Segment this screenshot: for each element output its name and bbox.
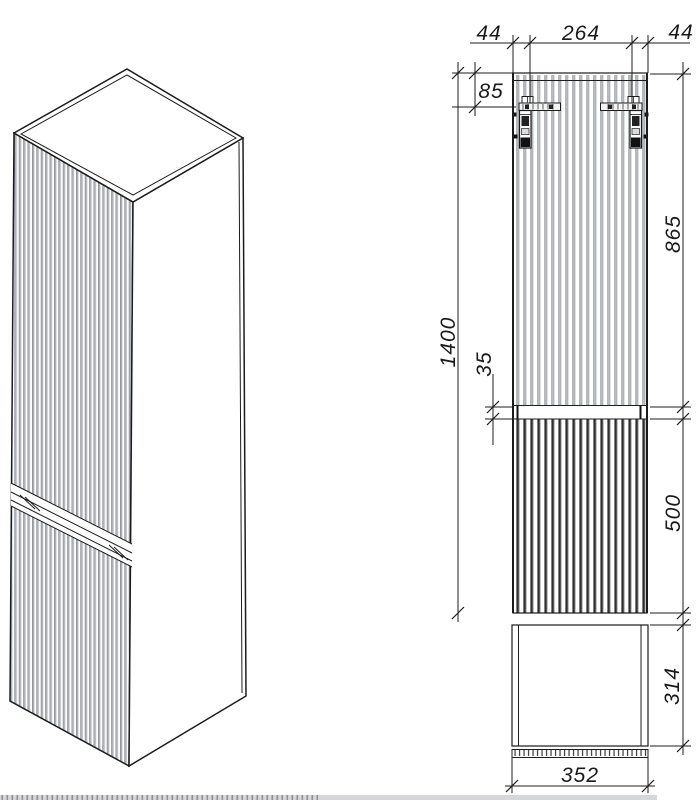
dim-label-height-total: 1400 [437, 317, 460, 368]
cabinet-technical-drawing: 44 264 44 85 1400 35 865 500 314 352 [0, 0, 699, 800]
iso-fluted-front-face [10, 133, 133, 766]
isometric-view [10, 69, 246, 766]
dim-label-bracket-drop: 85 [478, 80, 503, 103]
dim-label-depth: 314 [661, 667, 684, 705]
front-door-gap [513, 406, 647, 420]
dim-label-bracket-spacing: 264 [561, 22, 600, 45]
dim-label-width: 352 [561, 764, 599, 787]
front-lower-door-fluting [514, 420, 646, 613]
front-view [513, 73, 649, 613]
dim-label-door-gap: 35 [473, 351, 496, 376]
top-view [512, 625, 648, 758]
plan-fluted-door-edge [512, 750, 648, 758]
cropped-content-bottom [0, 795, 657, 800]
iso-side-face [129, 138, 246, 766]
dim-label-top-left-offset: 44 [476, 22, 501, 45]
plan-carcass [512, 625, 648, 746]
front-upper-door-fluting [514, 75, 646, 405]
technical-drawing-canvas: 44 264 44 85 1400 35 865 500 314 352 [0, 0, 699, 800]
dim-label-lower-door-height: 500 [662, 494, 685, 532]
dim-label-top-right-offset: 44 [668, 21, 693, 44]
dim-label-upper-door-height: 865 [662, 215, 685, 253]
